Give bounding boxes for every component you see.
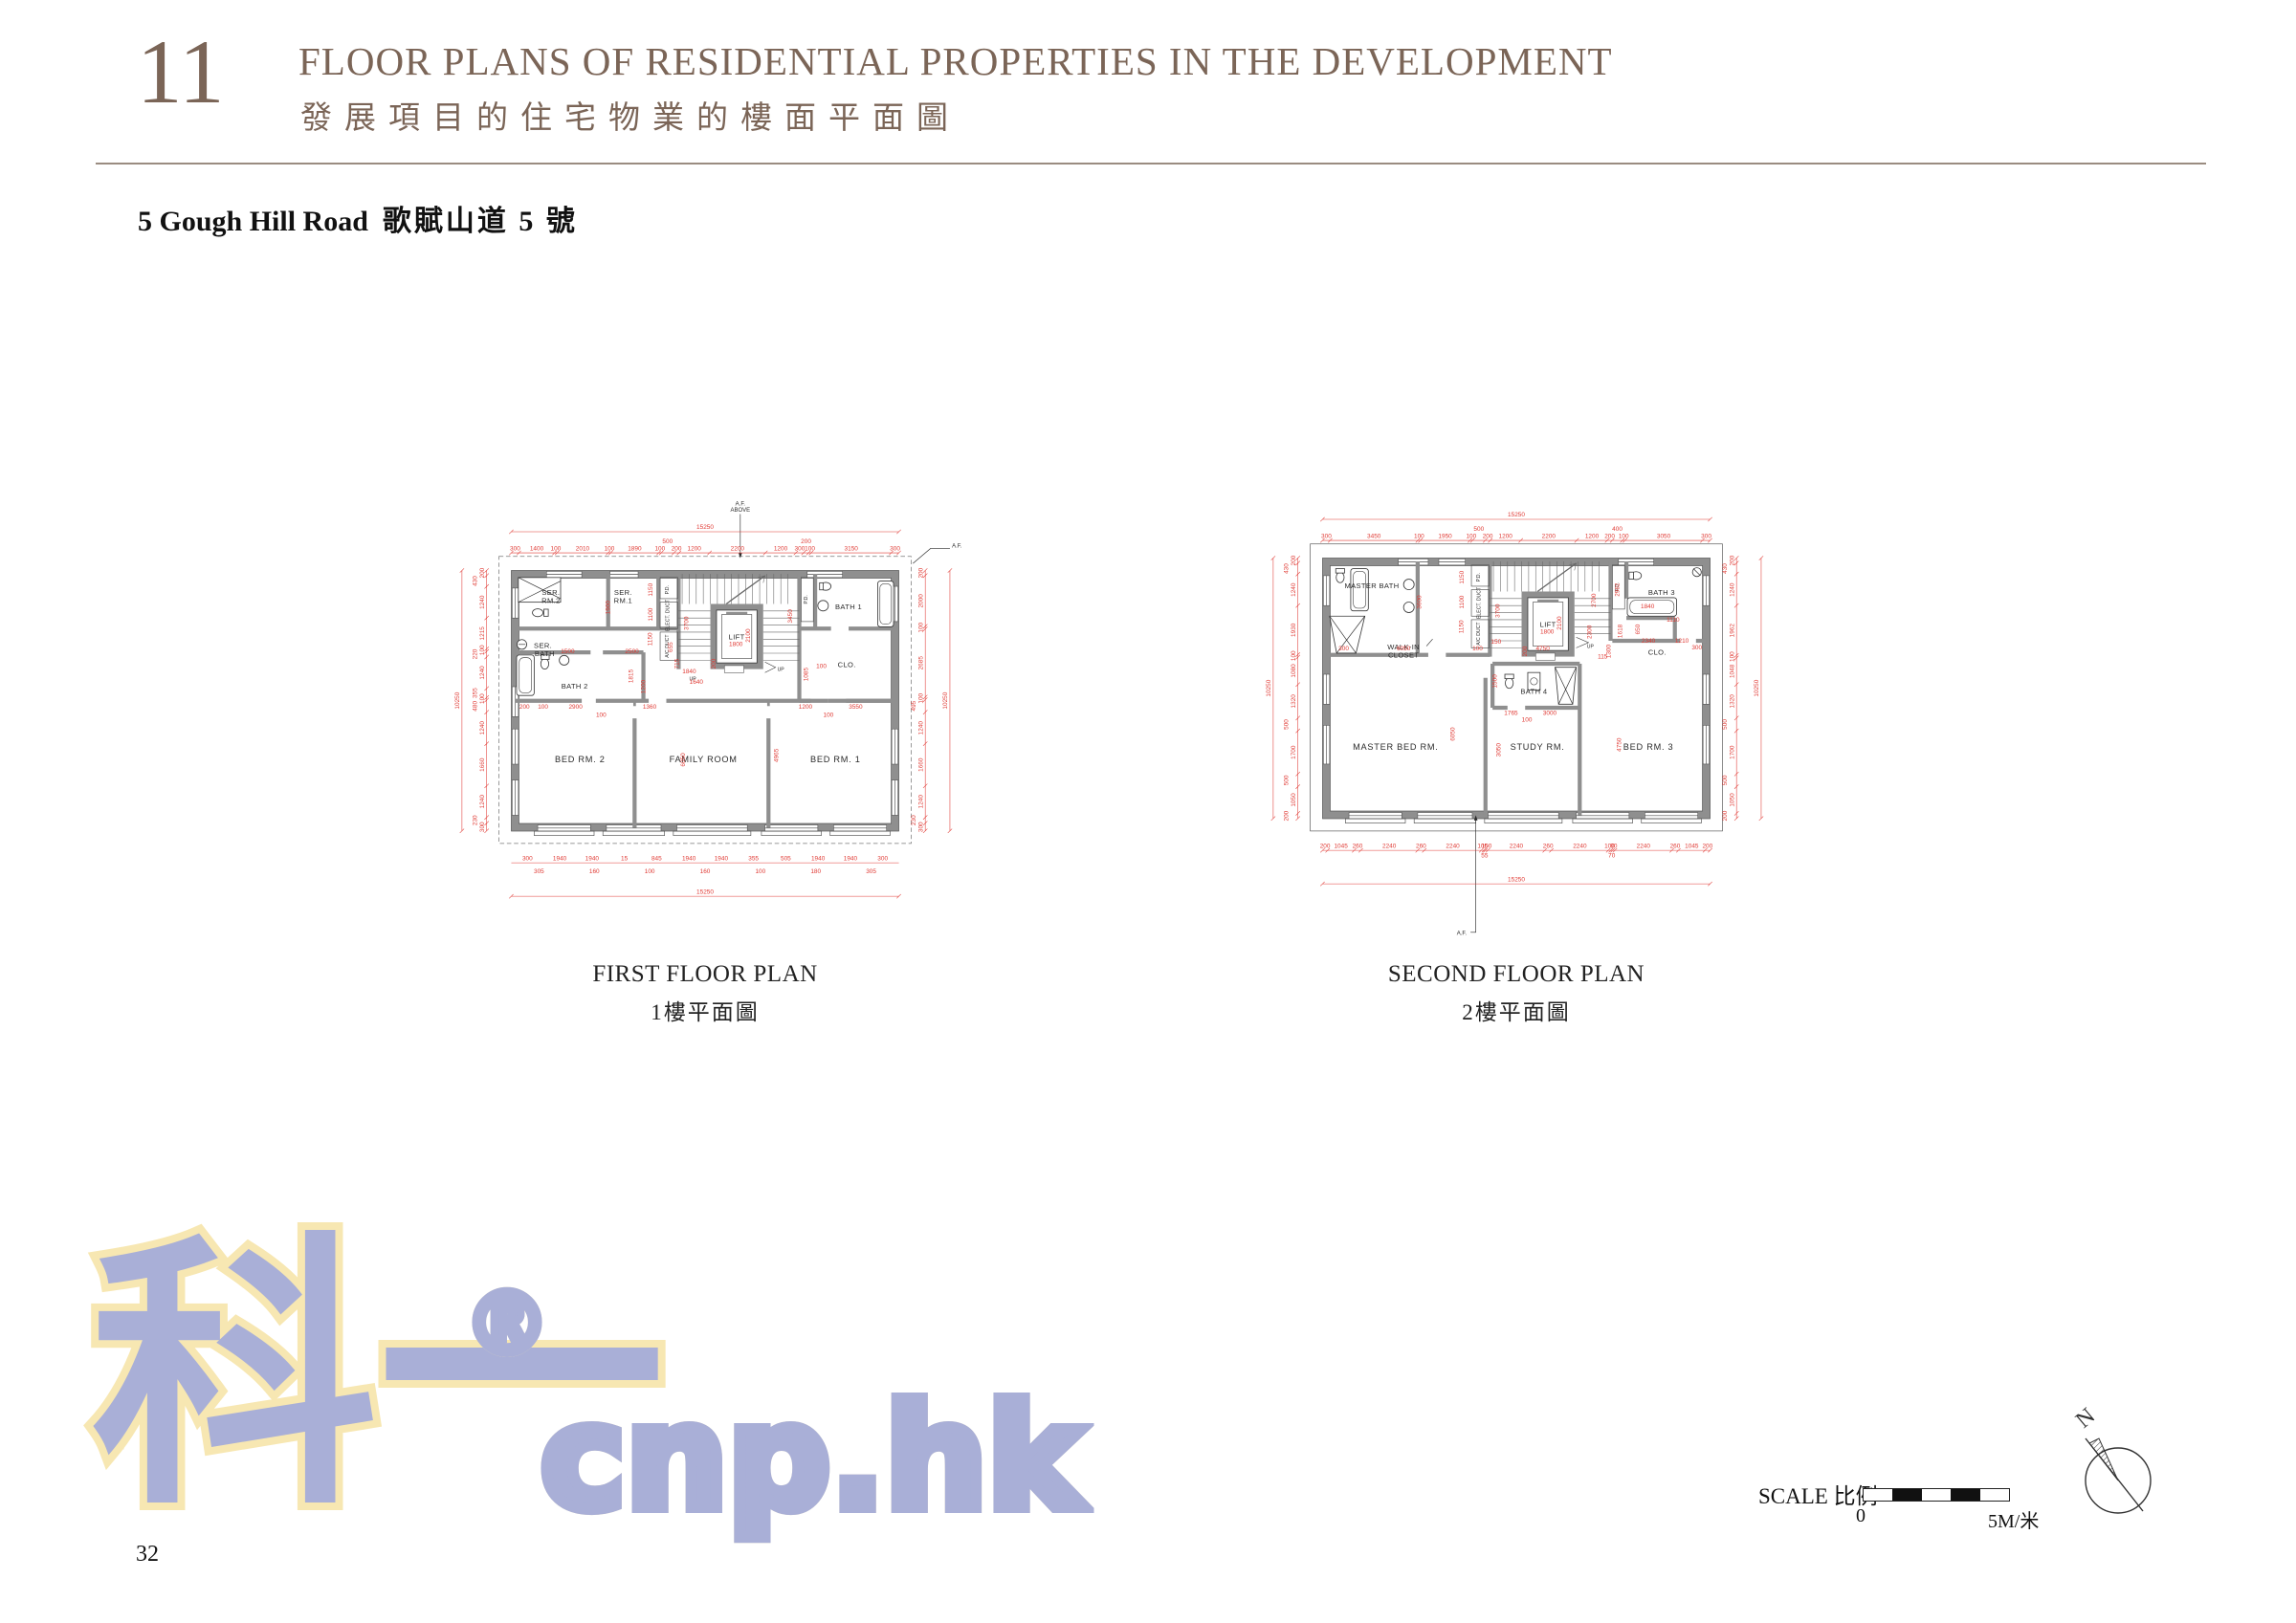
svg-text:10250: 10250	[454, 691, 461, 709]
svg-text:500: 500	[1473, 526, 1484, 533]
svg-text:1240: 1240	[479, 595, 486, 609]
svg-text:2340: 2340	[1642, 638, 1656, 645]
dim-chain-top: 3003450100195010050020012002200120020040…	[1320, 526, 1711, 542]
svg-text:2200: 2200	[731, 545, 745, 552]
svg-text:100: 100	[1619, 533, 1629, 539]
svg-text:15250: 15250	[696, 524, 714, 531]
svg-text:1800: 1800	[729, 642, 743, 648]
svg-text:200: 200	[672, 545, 682, 552]
svg-text:3550: 3550	[849, 704, 863, 711]
svg-text:1500: 1500	[561, 648, 575, 655]
svg-text:100: 100	[538, 704, 548, 711]
svg-text:1815: 1815	[629, 669, 635, 683]
svg-text:1200: 1200	[1585, 533, 1600, 539]
svg-text:1240: 1240	[1729, 582, 1735, 597]
dim-chain-top: 3001400100201010018901005002001200220012…	[509, 538, 900, 555]
svg-text:160: 160	[700, 868, 711, 875]
room-label-bath4: BATH 4	[1520, 687, 1547, 695]
svg-text:100: 100	[816, 664, 827, 670]
plan2-caption-en: SECOND FLOOR PLAN	[1181, 961, 1851, 988]
svg-text:1210: 1210	[1675, 638, 1689, 645]
svg-text:200: 200	[1522, 646, 1529, 656]
svg-text:2240: 2240	[1573, 843, 1587, 849]
svg-text:500: 500	[1284, 719, 1291, 730]
svg-text:1240: 1240	[479, 795, 486, 809]
svg-text:1940: 1940	[811, 855, 826, 862]
svg-text:3600: 3600	[1417, 595, 1424, 609]
svg-text:100: 100	[1291, 650, 1297, 661]
svg-text:430: 430	[473, 576, 479, 586]
dim-total-top: 15250	[509, 524, 900, 534]
plan1-caption-en: FIRST FLOOR PLAN	[370, 961, 1040, 988]
svg-text:100: 100	[596, 712, 607, 718]
svg-text:200: 200	[1604, 533, 1615, 539]
duct-label-pd: P.D.	[1476, 573, 1482, 581]
brochure-page: 11 FLOOR PLANS OF RESIDENTIAL PROPERTIES…	[0, 0, 2296, 1623]
room-label-lift: LIFT	[1540, 620, 1556, 628]
svg-text:200: 200	[1702, 843, 1712, 849]
scale-zero: 0	[1856, 1505, 1865, 1527]
svg-text:300: 300	[1321, 533, 1332, 539]
svg-text:2000: 2000	[917, 594, 924, 608]
svg-text:355: 355	[748, 855, 759, 862]
partition-walls	[515, 574, 895, 827]
svg-text:200: 200	[1483, 533, 1493, 539]
svg-text:10250: 10250	[1754, 679, 1760, 696]
svg-text:200: 200	[1729, 555, 1735, 565]
svg-text:180: 180	[810, 868, 821, 875]
svg-text:100: 100	[645, 868, 655, 875]
svg-text:1840: 1840	[1641, 603, 1655, 610]
svg-text:260: 260	[1353, 843, 1363, 849]
svg-text:100: 100	[755, 868, 765, 875]
duct-label-pd: P.D.	[665, 585, 671, 594]
svg-text:1660: 1660	[479, 757, 486, 772]
svg-text:400: 400	[1612, 526, 1623, 533]
svg-text:6050: 6050	[1397, 646, 1411, 652]
svg-text:2200: 2200	[1542, 533, 1556, 539]
svg-text:1150: 1150	[1459, 620, 1466, 633]
plan2-caption: SECOND FLOOR PLAN 2樓平面圖	[1181, 961, 1851, 1026]
svg-text:305: 305	[866, 868, 876, 875]
duct-label-pd: P.D.	[804, 595, 809, 603]
svg-text:1240: 1240	[917, 795, 924, 809]
svg-text:1940: 1940	[715, 855, 729, 862]
svg-text:6050: 6050	[680, 753, 687, 767]
svg-text:1200: 1200	[799, 704, 813, 711]
svg-text:100: 100	[654, 545, 665, 552]
svg-text:2900: 2900	[568, 704, 583, 711]
dim-chain-bottom-sub: 305160100160100180305	[534, 868, 876, 875]
svg-text:2240: 2240	[1510, 843, 1524, 849]
svg-text:1200: 1200	[640, 679, 647, 693]
svg-text:15: 15	[621, 855, 629, 862]
svg-text:200: 200	[1284, 810, 1291, 821]
room-label-bed2: BED RM. 2	[555, 755, 606, 764]
dim-total-top: 15250	[1320, 512, 1711, 521]
svg-text:1900: 1900	[606, 601, 612, 615]
svg-text:300: 300	[522, 855, 533, 862]
svg-text:1940: 1940	[553, 855, 567, 862]
svg-text:2700: 2700	[1591, 593, 1598, 607]
watermark-domain: cnp.hk	[541, 1387, 1083, 1530]
svg-text:230: 230	[473, 815, 479, 825]
svg-text:100: 100	[917, 692, 924, 703]
room-label-bed3: BED RM. 3	[1623, 742, 1674, 752]
compass-north-label: N	[2071, 1404, 2100, 1434]
duct-label-elect: ELECT. DUCT	[665, 599, 671, 631]
af-note: A.F.	[1457, 932, 1468, 937]
svg-text:15250: 15250	[1508, 876, 1525, 883]
page-title-zh: 發展項目的住宅物業的樓面平面圖	[300, 92, 960, 138]
svg-text:1800: 1800	[1540, 629, 1555, 636]
svg-text:2300: 2300	[1586, 625, 1593, 639]
svg-text:230: 230	[911, 815, 917, 825]
svg-text:1048: 1048	[1729, 664, 1735, 678]
svg-text:2240: 2240	[1382, 843, 1397, 849]
interior-dimensions: 1900115011001150655150025007151815120037…	[519, 582, 863, 766]
dim-chain-right: 20020001002685100495124016601240230300	[911, 567, 927, 833]
svg-text:10250: 10250	[942, 691, 949, 709]
svg-text:260: 260	[1670, 843, 1681, 849]
svg-text:430: 430	[1284, 563, 1291, 574]
dim-chain-left: 2004301240193010010801320500170050010502…	[1284, 555, 1300, 821]
svg-text:1940: 1940	[844, 855, 858, 862]
room-label-study: STUDY RM.	[1511, 742, 1565, 752]
svg-text:3050: 3050	[1495, 743, 1502, 757]
svg-text:430: 430	[1722, 563, 1729, 574]
svg-text:100: 100	[1466, 533, 1476, 539]
svg-text:715: 715	[673, 658, 680, 669]
svg-text:1110: 1110	[1667, 617, 1680, 624]
room-label-master-bath: MASTER BATH	[1344, 581, 1399, 590]
svg-text:100: 100	[805, 545, 815, 552]
room-label-bath1: BATH 1	[835, 603, 862, 611]
dim-total-left: 10250	[454, 568, 464, 833]
svg-text:2100: 2100	[1556, 616, 1563, 630]
svg-text:1840: 1840	[682, 669, 696, 675]
svg-text:3700: 3700	[1495, 603, 1502, 618]
svg-text:1150: 1150	[648, 582, 654, 596]
svg-text:200: 200	[1291, 555, 1297, 565]
svg-text:2685: 2685	[917, 656, 924, 670]
room-label-master-bed: MASTER BED RM.	[1353, 742, 1438, 752]
af-above-note: ABOVE	[731, 508, 751, 514]
svg-text:1950: 1950	[1438, 533, 1452, 539]
svg-text:100: 100	[824, 712, 834, 718]
svg-text:1320: 1320	[1729, 694, 1735, 709]
dim-total-bottom: 15250	[1320, 876, 1711, 886]
svg-text:655: 655	[668, 642, 674, 652]
svg-text:1100: 1100	[1459, 595, 1466, 608]
svg-text:1360: 1360	[643, 704, 657, 711]
duct-label-ac: A/C DUCT	[1476, 622, 1482, 646]
svg-text:3700: 3700	[684, 616, 691, 630]
room-label-ser-rm2: RM.2	[541, 597, 560, 605]
af-above-note: A.F.	[736, 501, 746, 507]
svg-text:500: 500	[662, 538, 673, 545]
svg-text:3050: 3050	[1657, 533, 1671, 539]
dim-chain-left: 2004301240121510022012403551004801240166…	[473, 567, 489, 833]
svg-text:1045: 1045	[1334, 843, 1348, 849]
room-label-bath3: BATH 3	[1648, 588, 1675, 597]
svg-text:2100: 2100	[745, 628, 752, 643]
svg-text:300: 300	[1691, 645, 1702, 651]
address-zh: 歌賦山道 5 號	[383, 206, 578, 237]
svg-text:305: 305	[534, 868, 544, 875]
stair-up-label: UP	[778, 667, 785, 672]
room-label-clo: CLO.	[1648, 648, 1667, 657]
af-note: A.F.	[952, 544, 962, 550]
svg-text:300: 300	[795, 545, 806, 552]
room-label-ser-rm1: RM.1	[614, 597, 632, 605]
section-number: 11	[137, 27, 224, 118]
svg-text:1045: 1045	[1685, 843, 1699, 849]
plan1-caption: FIRST FLOOR PLAN 1樓平面圖	[370, 961, 1040, 1026]
svg-text:10250: 10250	[1266, 679, 1272, 696]
svg-text:90: 90	[1610, 843, 1618, 849]
svg-text:505: 505	[781, 855, 791, 862]
svg-text:260: 260	[1416, 843, 1426, 849]
svg-text:200: 200	[917, 567, 924, 578]
svg-text:1962: 1962	[1729, 624, 1735, 638]
stair-up-label: UP	[1587, 644, 1595, 649]
svg-text:1240: 1240	[917, 721, 924, 735]
svg-text:100: 100	[551, 545, 562, 552]
svg-text:100: 100	[479, 693, 486, 704]
svg-text:100: 100	[1472, 646, 1483, 652]
svg-text:1050: 1050	[1729, 793, 1735, 807]
svg-text:1100: 1100	[648, 607, 654, 621]
svg-text:1890: 1890	[628, 545, 642, 552]
svg-text:160: 160	[589, 868, 600, 875]
second-floor-plan: MASTER BATH BATH 3 CLO. WALK-IN CLOSET B…	[1181, 452, 1851, 963]
dim-total-right: 10250	[1754, 556, 1763, 821]
svg-text:1940: 1940	[682, 855, 696, 862]
svg-text:495: 495	[911, 700, 917, 711]
svg-text:1085: 1085	[804, 668, 810, 682]
svg-text:2240: 2240	[1637, 843, 1651, 849]
first-floor-plan: SER. RM.2 SER. RM.1 BATH 1 SER. BATH BAT…	[370, 465, 1040, 976]
svg-text:300: 300	[890, 545, 900, 552]
svg-text:2500: 2500	[625, 648, 639, 655]
svg-text:200: 200	[479, 567, 486, 578]
svg-text:100: 100	[605, 545, 615, 552]
svg-text:1320: 1320	[1291, 694, 1297, 709]
dim-total-right: 10250	[942, 568, 952, 833]
address-en: 5 Gough Hill Road	[138, 206, 368, 237]
svg-text:220: 220	[473, 648, 479, 659]
svg-text:1200: 1200	[688, 545, 702, 552]
svg-text:500: 500	[1722, 719, 1729, 730]
svg-text:845: 845	[651, 855, 662, 862]
svg-text:1080: 1080	[1291, 664, 1297, 678]
svg-text:300: 300	[917, 822, 924, 832]
scale-bar	[1863, 1488, 2010, 1502]
svg-text:1240: 1240	[479, 721, 486, 735]
svg-text:70: 70	[1608, 853, 1616, 860]
svg-text:4750: 4750	[1617, 737, 1623, 752]
svg-text:1500: 1500	[1492, 674, 1499, 689]
svg-text:1200: 1200	[1499, 533, 1513, 539]
svg-text:15250: 15250	[696, 888, 714, 895]
svg-text:1700: 1700	[1729, 745, 1735, 759]
dim-chain-right: 2004301240196210010481320500170050010502…	[1722, 555, 1738, 821]
svg-text:480: 480	[473, 701, 479, 712]
svg-text:1215: 1215	[479, 626, 486, 641]
room-label-bath2: BATH 2	[562, 682, 588, 691]
svg-text:3000: 3000	[1543, 710, 1557, 716]
svg-text:1700: 1700	[1291, 745, 1297, 759]
svg-text:150: 150	[1490, 639, 1501, 646]
svg-text:100: 100	[1482, 843, 1492, 849]
svg-text:300: 300	[877, 855, 888, 862]
page-number: 32	[136, 1542, 159, 1568]
room-label-ser-bath: BATH	[535, 649, 555, 658]
svg-text:115: 115	[1598, 653, 1608, 660]
svg-text:2982: 2982	[1615, 582, 1622, 597]
svg-text:4750: 4750	[1535, 646, 1550, 652]
duct-label-elect: ELECT. DUCT	[1476, 586, 1482, 619]
svg-text:500: 500	[1284, 775, 1291, 785]
svg-text:100: 100	[1522, 717, 1533, 724]
svg-text:100: 100	[917, 622, 924, 632]
svg-text:300: 300	[1338, 646, 1349, 652]
bath-fixtures	[517, 578, 894, 695]
north-compass-icon: N	[2057, 1404, 2181, 1528]
svg-text:500: 500	[1722, 775, 1729, 785]
svg-text:100: 100	[1414, 533, 1424, 539]
svg-text:1240: 1240	[479, 666, 486, 680]
dim-total-bottom: 15250	[509, 888, 900, 898]
svg-text:1150: 1150	[648, 632, 654, 646]
watermark-logo: 科一 科一 ® ® cnp.hk cnp.hk	[91, 1234, 665, 1521]
address-subtitle: 5 Gough Hill Road 歌賦山道 5 號	[138, 197, 578, 239]
svg-text:2240: 2240	[1446, 843, 1460, 849]
dim-chain-bottom: 2001045260224026022401055510022402602240…	[1320, 843, 1713, 859]
svg-text:1050: 1050	[1291, 793, 1297, 807]
svg-text:200: 200	[1320, 843, 1331, 849]
plan2-caption-zh: 2樓平面圖	[1181, 994, 1851, 1026]
registered-mark-icon: ®	[464, 1282, 550, 1368]
dim-total-left: 10250	[1266, 556, 1275, 821]
svg-text:1240: 1240	[1291, 582, 1297, 597]
svg-text:3450: 3450	[1367, 533, 1381, 539]
svg-text:1618: 1618	[1617, 624, 1623, 638]
svg-text:1640: 1640	[690, 679, 704, 686]
svg-text:200: 200	[711, 658, 717, 669]
svg-text:1150: 1150	[1459, 570, 1466, 583]
scale-max: 5M/米	[1988, 1505, 2039, 1533]
svg-text:1660: 1660	[917, 757, 924, 772]
svg-text:3150: 3150	[845, 545, 859, 552]
svg-text:650: 650	[1635, 624, 1642, 634]
room-label-clo: CLO.	[838, 661, 856, 669]
svg-text:3450: 3450	[787, 609, 794, 624]
svg-text:200: 200	[801, 538, 811, 545]
svg-text:15250: 15250	[1508, 512, 1525, 518]
svg-text:100: 100	[479, 645, 486, 655]
plan1-caption-zh: 1樓平面圖	[370, 994, 1040, 1026]
svg-text:6050: 6050	[1450, 727, 1457, 741]
room-label-lift: LIFT	[729, 632, 745, 641]
svg-text:300: 300	[510, 545, 520, 552]
svg-text:1400: 1400	[530, 545, 544, 552]
svg-text:1930: 1930	[1291, 623, 1297, 637]
svg-text:260: 260	[1543, 843, 1554, 849]
page-title-en: FLOOR PLANS OF RESIDENTIAL PROPERTIES IN…	[298, 38, 1613, 84]
svg-text:1940: 1940	[585, 855, 600, 862]
svg-text:300: 300	[1701, 533, 1711, 539]
svg-text:2010: 2010	[576, 545, 590, 552]
svg-text:300: 300	[479, 822, 486, 832]
svg-text:55: 55	[1481, 853, 1489, 860]
svg-text:200: 200	[519, 704, 530, 711]
dim-chain-bottom: 3001940194015845194019403555051940194030…	[511, 855, 898, 863]
svg-text:4965: 4965	[773, 748, 780, 762]
svg-text:355: 355	[473, 688, 479, 698]
svg-text:1200: 1200	[774, 545, 788, 552]
header-divider	[96, 163, 2206, 164]
room-label-bed1: BED RM. 1	[810, 755, 861, 764]
svg-text:1765: 1765	[1504, 710, 1518, 716]
svg-text:200: 200	[1722, 810, 1729, 821]
svg-text:100: 100	[1729, 651, 1735, 662]
